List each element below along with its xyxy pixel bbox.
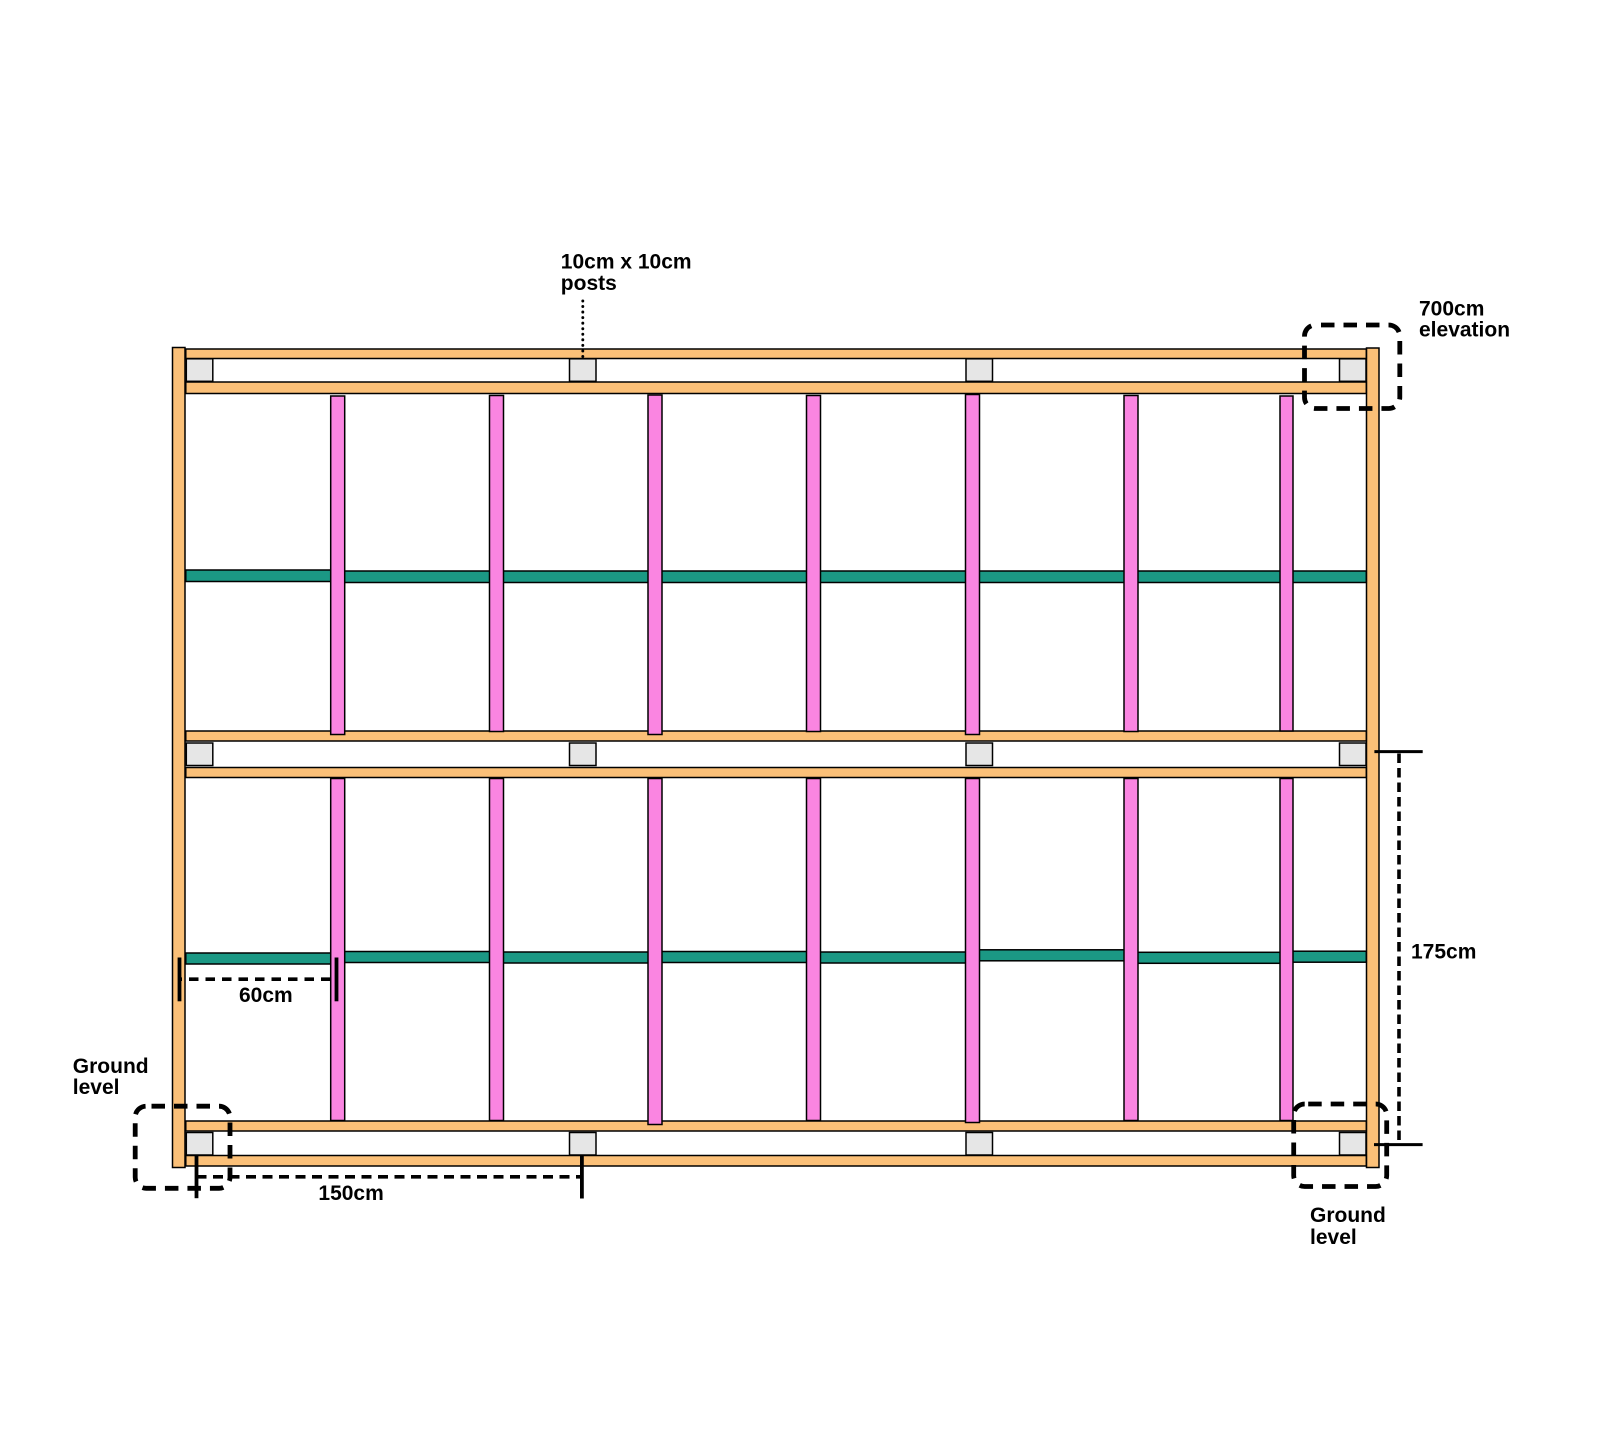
svg-text:level: level [1310,1226,1357,1249]
svg-text:level: level [73,1076,120,1099]
svg-text:700cm: 700cm [1419,297,1484,320]
svg-text:Ground: Ground [1310,1204,1386,1227]
svg-text:150cm: 150cm [318,1182,383,1205]
svg-text:175cm: 175cm [1411,940,1476,963]
svg-text:posts: posts [561,272,617,295]
svg-text:10cm x 10cm: 10cm x 10cm [561,251,692,274]
svg-text:60cm: 60cm [239,984,293,1007]
svg-text:elevation: elevation [1419,319,1510,342]
svg-text:Ground: Ground [73,1055,149,1078]
